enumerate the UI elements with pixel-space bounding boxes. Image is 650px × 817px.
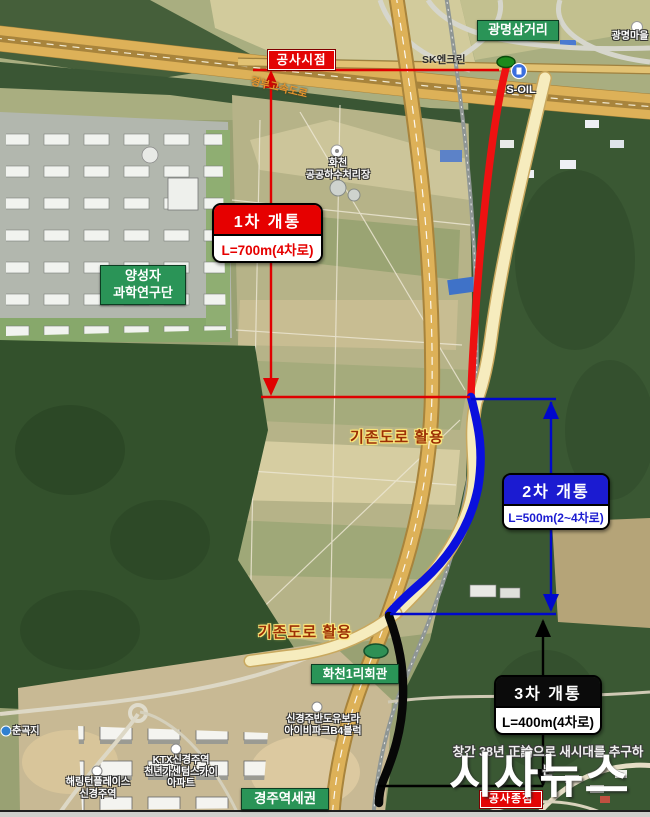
construction-start-label: 공사시점 <box>268 50 335 70</box>
watermark-brand: 시사뉴스 <box>449 753 630 801</box>
phase2-callout: 2차 개통 L=500m(2~4차로) <box>502 473 610 530</box>
reservoir-label: 춘곡지 <box>12 726 40 738</box>
sk-station-label: SK엔크린 <box>422 54 466 66</box>
annotated-satellite-map: 공사시점 광명삼거리 광명마을 SK엔크린 S-OIL 경부고속도로 화천 공공… <box>0 0 650 817</box>
apt-poi-icon-1 <box>92 766 102 776</box>
apt-poi-icon-2 <box>171 744 181 754</box>
existing-road-note-upper: 기존도로 활용 <box>350 429 444 446</box>
phase1-title: 1차 개통 <box>214 205 321 234</box>
village-hall-dot-icon <box>364 644 388 658</box>
phase2-length: L=500m(2~4차로) <box>504 504 608 528</box>
station-area-label: 경주역세권 <box>241 788 329 810</box>
gwangmyeong-junction-label: 광명삼거리 <box>477 20 559 41</box>
existing-road-note-lower: 기존도로 활용 <box>258 624 352 641</box>
village-hall-label: 화천1리회관 <box>311 664 399 684</box>
reservoir-poi-icon <box>1 726 11 736</box>
apt-poi-icon-3 <box>312 702 322 712</box>
phase1-length: L=700m(4차로) <box>214 234 321 261</box>
phase1-callout: 1차 개통 L=700m(4차로) <box>212 203 323 263</box>
phase3-title: 3차 개통 <box>496 677 600 706</box>
phase2-title: 2차 개통 <box>504 475 608 504</box>
bando-apartment-label: 신경주반도유보라 아이비파크B4블럭 <box>278 714 368 737</box>
research-center-label: 양성자 과학연구단 <box>100 265 186 305</box>
ktx-apartment-label: KTX신경주역 천년가센텀스카이 아파트 <box>138 755 224 790</box>
phase3-callout: 3차 개통 L=400m(4차로) <box>494 675 602 735</box>
junction-dot-icon <box>497 57 515 68</box>
phase3-length: L=400m(4차로) <box>496 706 600 733</box>
soil-station-label: S-OIL <box>500 84 542 97</box>
herrington-apartment-label: 해링턴플레이스 신경주역 <box>60 777 136 800</box>
sewage-plant-label: 화천 공공하수처리장 <box>299 158 377 181</box>
gwangmyeong-village-label: 광명마을 <box>608 31 650 43</box>
